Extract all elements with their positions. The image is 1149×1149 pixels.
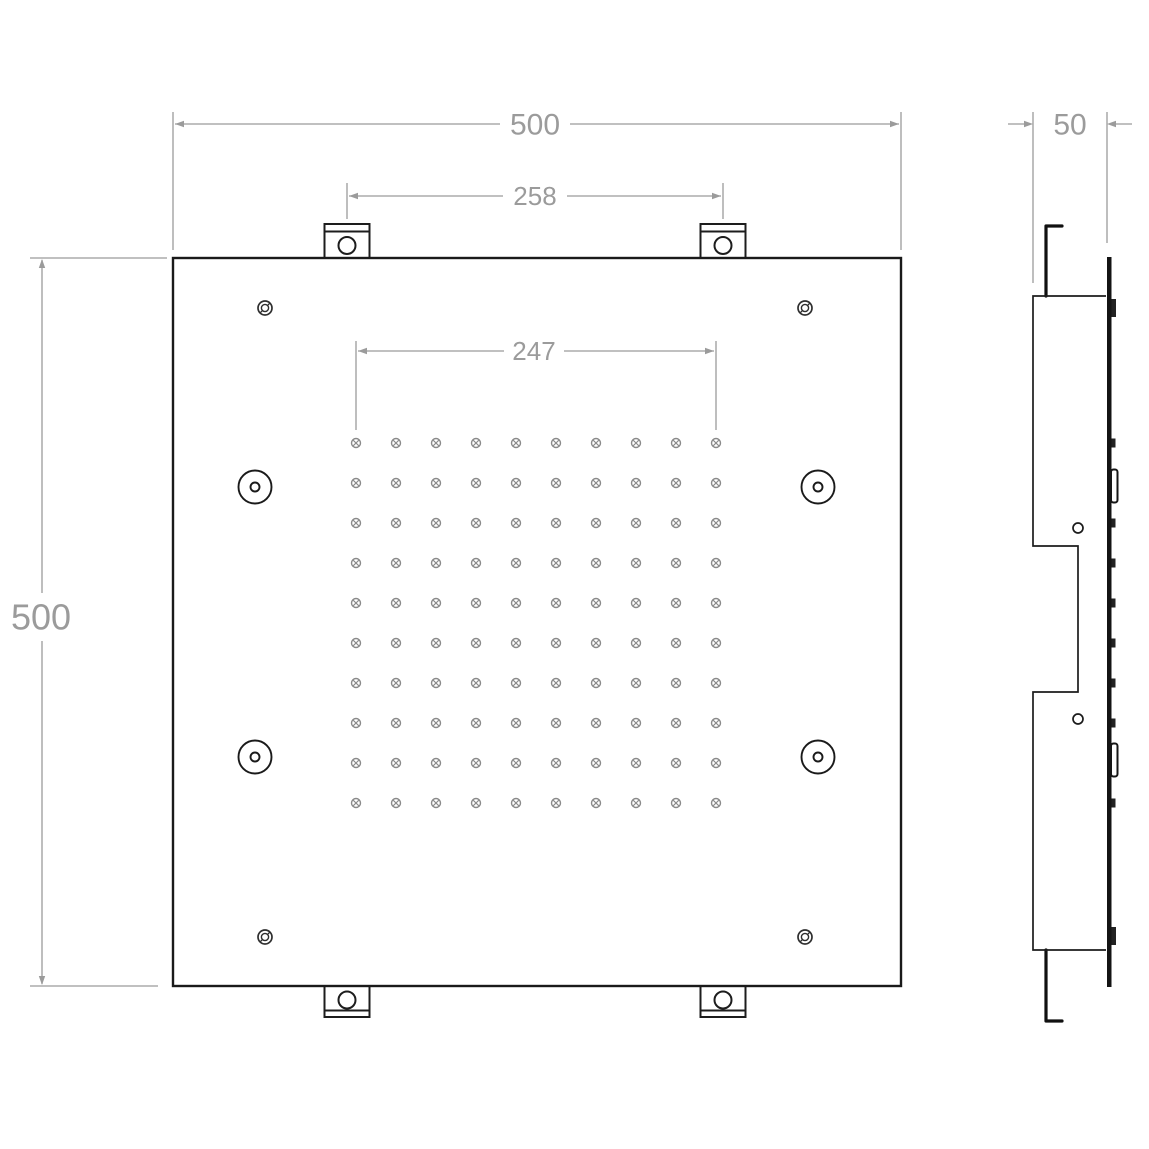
side-bumps (1111, 299, 1118, 945)
bottom-mounting-hook (1046, 950, 1062, 1021)
led-center (814, 483, 823, 492)
arrow-left (175, 121, 184, 127)
side-led-bump (1111, 470, 1118, 503)
side-nozzle-bump (1112, 679, 1116, 688)
side-nozzle-bump (1112, 599, 1116, 608)
arrow-right (1024, 121, 1033, 127)
face-plate (1107, 257, 1112, 987)
dimension-side-depth: 50 (1008, 109, 1132, 284)
arrow-left (1107, 121, 1116, 127)
panel-outline (173, 258, 901, 986)
side-screw-bump (1112, 299, 1117, 317)
side-nozzle-bump (1112, 639, 1116, 648)
arrow-up (39, 259, 45, 268)
side-nozzle-bump (1112, 559, 1116, 568)
technical-drawing-page: 500 258 247 500 50 (0, 0, 1149, 1149)
dim-label-tab-spacing: 258 (513, 181, 556, 211)
tab-hole (715, 992, 732, 1009)
shower-head-drawing: 500 258 247 500 50 (0, 0, 1149, 1149)
tab-hole (339, 992, 356, 1009)
led-center (251, 483, 260, 492)
side-nozzle-bump (1112, 799, 1116, 808)
housing-profile (1033, 296, 1106, 950)
dim-label-front-width: 500 (510, 109, 560, 142)
arrow-right (890, 121, 899, 127)
side-nozzle-bump (1112, 439, 1116, 448)
dimension-front-width: 500 (173, 109, 901, 251)
bracket-hole-lower (1073, 714, 1083, 724)
side-screw-bump (1112, 927, 1117, 945)
tab-hole (715, 237, 732, 254)
arrow-left (349, 193, 358, 199)
led-center (814, 753, 823, 762)
side-view (1033, 226, 1118, 1021)
dimension-tab-spacing: 258 (347, 181, 723, 219)
dim-label-nozzle-span: 247 (512, 336, 555, 366)
arrow-down (39, 976, 45, 985)
bracket-hole-upper (1073, 523, 1083, 533)
arrow-right (712, 193, 721, 199)
side-nozzle-bump (1112, 719, 1116, 728)
led-center (251, 753, 260, 762)
dim-label-front-height: 500 (11, 597, 71, 638)
tab-hole (339, 237, 356, 254)
side-led-bump (1111, 744, 1118, 777)
dimension-front-height: 500 (11, 258, 167, 986)
dim-label-side-depth: 50 (1053, 109, 1086, 142)
top-mounting-hook (1046, 226, 1062, 296)
side-nozzle-bump (1112, 519, 1116, 528)
